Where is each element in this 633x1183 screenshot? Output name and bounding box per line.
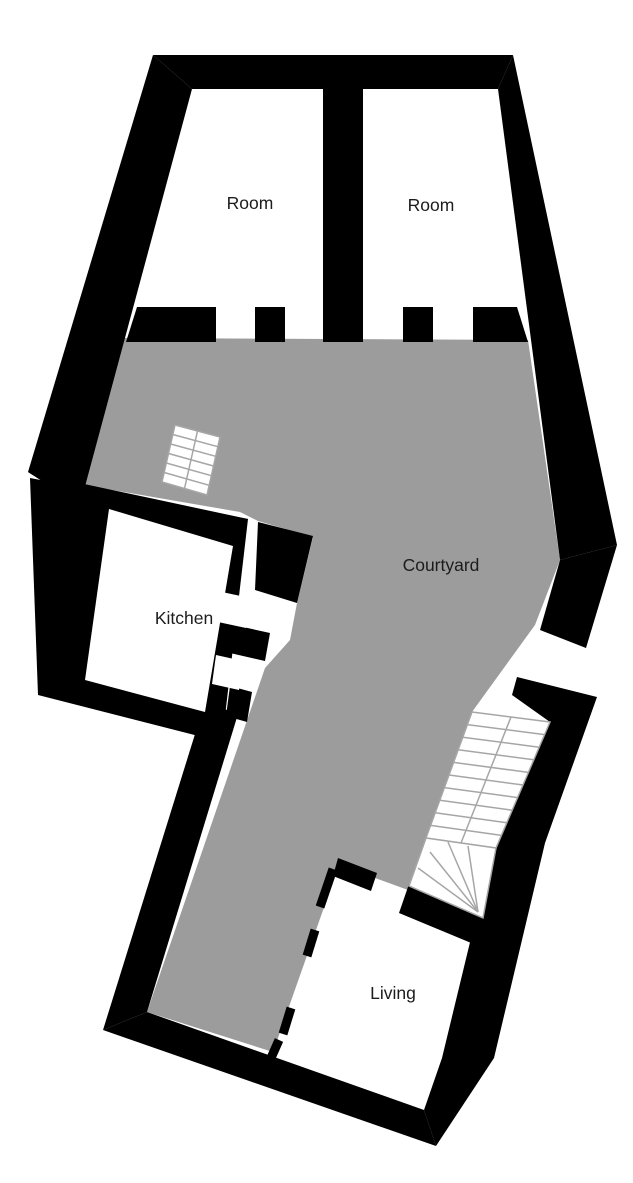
wall-room1-bottom bbox=[126, 307, 216, 342]
room-1-label: Room bbox=[227, 193, 274, 213]
floor-plan: Room Room Courtyard Kitchen Living bbox=[0, 0, 633, 1183]
door-post-room1 bbox=[255, 307, 285, 342]
kitchen-label: Kitchen bbox=[155, 608, 213, 628]
room-2-label: Room bbox=[408, 195, 455, 215]
kitchen-door-gap-1 bbox=[218, 592, 250, 628]
wall-top bbox=[153, 55, 513, 89]
wall-room-divider bbox=[323, 89, 363, 342]
kitchen-door-gap-2 bbox=[212, 655, 243, 690]
door-post-room2 bbox=[403, 307, 433, 342]
floor-plan-page: Room Room Courtyard Kitchen Living bbox=[0, 0, 633, 1183]
courtyard-label: Courtyard bbox=[403, 555, 480, 575]
living-label: Living bbox=[370, 983, 416, 1003]
wall-room2-bottom bbox=[473, 307, 528, 342]
wall-kitchen-pier-lower bbox=[230, 625, 270, 661]
